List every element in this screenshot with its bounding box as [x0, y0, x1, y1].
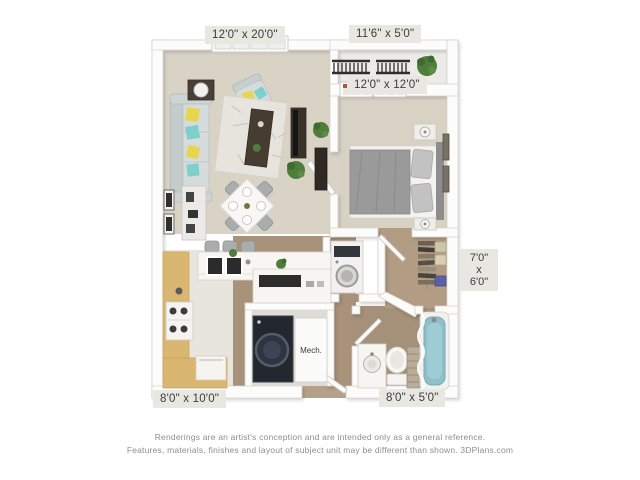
bed [350, 142, 444, 220]
disclaimer-line-2: Features, materials, finishes and layout… [0, 444, 640, 457]
disclaimer-line-1: Renderings are an artist's conception an… [0, 431, 640, 444]
stacked-washer-dryer [331, 241, 363, 293]
disclaimer: Renderings are an artist's conception an… [0, 431, 640, 457]
mech-closet-label: Mech. [293, 346, 329, 355]
closet-dimension-line-1: 7'0" [462, 252, 496, 264]
dishwasher [196, 356, 226, 380]
dimension-label-living-dining: 12'0" x 20'0" [205, 26, 285, 44]
stove [166, 302, 193, 340]
side-table-lamp [188, 80, 214, 100]
dimension-label-bedroom: 12'0" x 12'0" [347, 76, 427, 94]
dimension-label-kitchen: 8'0" x 10'0" [153, 390, 226, 408]
bathtub [419, 312, 450, 390]
balcony-plant [417, 56, 437, 77]
hall-cabinet [253, 269, 331, 303]
closet-dimension-line-3: 6'0" [462, 276, 496, 288]
dimension-label-bathroom: 8'0" x 5'0" [379, 389, 445, 407]
dimension-label-balcony: 11'6" x 5'0" [349, 25, 421, 43]
bathroom-vanity [358, 344, 386, 388]
closet-dimension-line-2: x [462, 264, 496, 276]
floor-plan-rendering [0, 0, 640, 480]
toilet [386, 347, 408, 385]
dining-set [220, 179, 274, 233]
dimension-label-walk-in-closet: 7'0" x 6'0" [460, 249, 498, 291]
floor-plan-page: 12'0" x 20'0" 11'6" x 5'0" 12'0" x 12'0"… [0, 0, 640, 480]
